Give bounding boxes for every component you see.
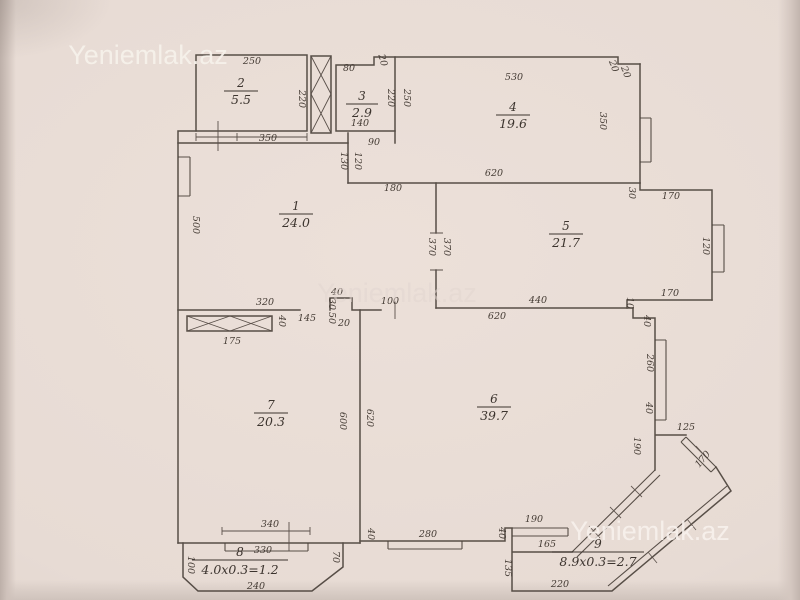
dimension-label: 330 bbox=[254, 545, 272, 556]
room-label: 6 39.7 bbox=[477, 392, 511, 423]
room-label: 8 4.0x0.3=1.2 bbox=[192, 545, 288, 577]
dimension-label: 100 bbox=[185, 556, 196, 574]
room-number: 1 bbox=[292, 199, 300, 213]
dimension-label: 20 bbox=[337, 318, 350, 329]
room-label: 3 2.9 bbox=[346, 89, 378, 120]
room-label: 5 21.7 bbox=[549, 219, 583, 250]
dimension-label: 40 bbox=[643, 401, 654, 414]
dimension-label: 10 bbox=[624, 297, 635, 309]
dimension-label: 30 bbox=[626, 187, 637, 199]
dimension-label: 220 bbox=[296, 89, 307, 108]
room-area: 39.7 bbox=[480, 408, 508, 423]
dimension-label: 350 bbox=[597, 112, 608, 130]
dimension-label: 120 bbox=[352, 152, 363, 170]
room-number: 4 bbox=[508, 100, 517, 114]
dimension-label: 370 bbox=[441, 238, 452, 256]
dimension-label: 370 bbox=[426, 238, 437, 256]
dimension-label: 250 bbox=[401, 88, 412, 107]
dimension-label: 40 bbox=[641, 314, 652, 327]
watermark-text: Yeniemlak.az bbox=[570, 516, 730, 546]
dimension-label: 320 bbox=[256, 297, 274, 308]
dimension-label: 600 bbox=[337, 412, 348, 430]
dimension-label: 240 bbox=[246, 581, 265, 592]
dimension-label: 125 bbox=[677, 422, 695, 433]
dimension-label: 40 bbox=[365, 527, 376, 540]
room-number: 3 bbox=[358, 89, 366, 103]
dimension-label: 40 bbox=[276, 314, 287, 327]
dimension-label: 90 bbox=[368, 137, 380, 148]
room-label: 2 5.5 bbox=[224, 76, 258, 107]
dimension-label: 170 bbox=[662, 191, 680, 202]
room-area: 5.5 bbox=[231, 92, 251, 107]
dimension-label: 190 bbox=[525, 514, 543, 525]
room-area: 8.9x0.3=2.7 bbox=[559, 554, 636, 569]
dimension-label: 175 bbox=[223, 336, 241, 347]
dimension-label: 620 bbox=[364, 409, 375, 427]
shaft-frame bbox=[187, 56, 331, 331]
dimension-label: 530 bbox=[505, 72, 523, 83]
dimension-label: 130 bbox=[338, 152, 349, 170]
dimension-label: 170 bbox=[661, 288, 679, 299]
dimension-label: 250 bbox=[242, 56, 261, 67]
shaft-hatch bbox=[187, 56, 331, 331]
room-area: 2.9 bbox=[351, 105, 372, 120]
dimension-label: 135 bbox=[502, 559, 513, 577]
dimension-label: 20 bbox=[375, 52, 389, 67]
dimension-label: 350 bbox=[259, 133, 277, 144]
watermarks: Yeniemlak.az Yeniemlak.az Yeniemlak.az bbox=[68, 40, 730, 546]
dimension-labels: 2502203508020220250140901301201805302020… bbox=[185, 52, 713, 592]
dimension-label: 70 bbox=[330, 551, 341, 563]
room-label: 1 24.0 bbox=[279, 199, 313, 230]
dimension-label: 40 bbox=[496, 526, 507, 539]
watermark-text: Yeniemlak.az bbox=[317, 278, 477, 308]
dimension-label: 220 bbox=[550, 579, 569, 590]
dimension-label: 145 bbox=[298, 313, 316, 324]
floor-plan: 2502203508020220250140901301201805302020… bbox=[0, 0, 800, 600]
dimension-label: 280 bbox=[418, 529, 437, 540]
dimension-label: 260 bbox=[644, 353, 655, 372]
dimension-label: 620 bbox=[485, 168, 503, 179]
room-number: 5 bbox=[562, 219, 570, 233]
room-area: 24.0 bbox=[281, 215, 310, 230]
dimension-label: 120 bbox=[700, 237, 711, 255]
room-number: 8 bbox=[236, 545, 244, 559]
room-number: 2 bbox=[236, 76, 245, 90]
room-area: 4.0x0.3=1.2 bbox=[200, 562, 278, 577]
room-number: 7 bbox=[267, 398, 275, 412]
dimension-label: 165 bbox=[538, 539, 556, 550]
room-area: 20.3 bbox=[256, 414, 285, 429]
dimension-label: 50 bbox=[326, 312, 337, 324]
dimension-label: 190 bbox=[631, 437, 642, 455]
dimension-label: 500 bbox=[190, 216, 201, 234]
room-area: 21.7 bbox=[551, 235, 580, 250]
dimension-label: 620 bbox=[488, 311, 506, 322]
room-label: 4 19.6 bbox=[496, 100, 530, 131]
room-area: 19.6 bbox=[499, 116, 527, 131]
room-number: 6 bbox=[490, 392, 498, 406]
dimension-label: 340 bbox=[261, 519, 279, 530]
floor-plan-photo: 2502203508020220250140901301201805302020… bbox=[0, 0, 800, 600]
watermark-text: Yeniemlak.az bbox=[68, 40, 228, 70]
room-label: 7 20.3 bbox=[254, 398, 288, 429]
dimension-label: 80 bbox=[343, 63, 355, 74]
dimension-label: 440 bbox=[528, 295, 547, 306]
dimension-label: 180 bbox=[384, 183, 402, 194]
dimension-label: 170 bbox=[693, 449, 713, 470]
dimension-label: 220 bbox=[385, 88, 396, 107]
